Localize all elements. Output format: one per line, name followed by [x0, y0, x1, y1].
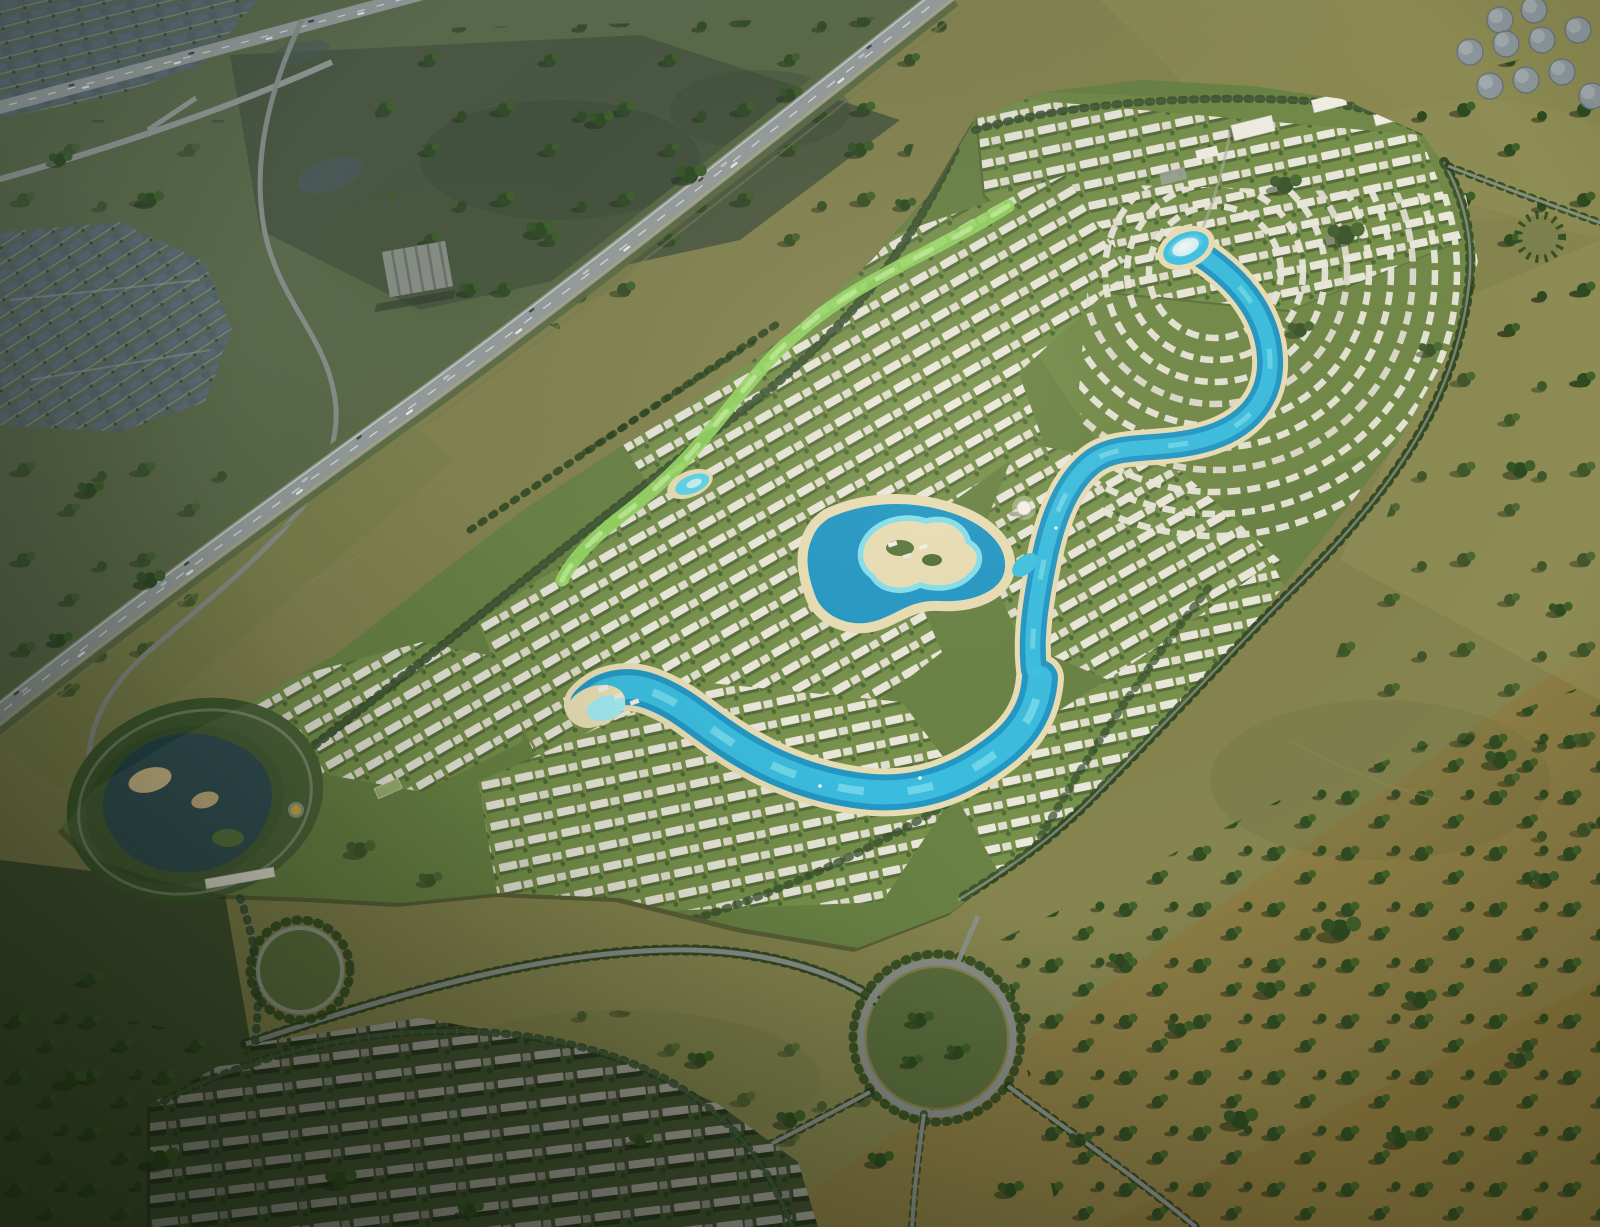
- aerial-render-view: [0, 0, 1600, 1227]
- atmosphere-overlays: [0, 0, 1600, 1227]
- masterplan-aerial-svg: [0, 0, 1600, 1227]
- vignette: [0, 0, 1600, 1227]
